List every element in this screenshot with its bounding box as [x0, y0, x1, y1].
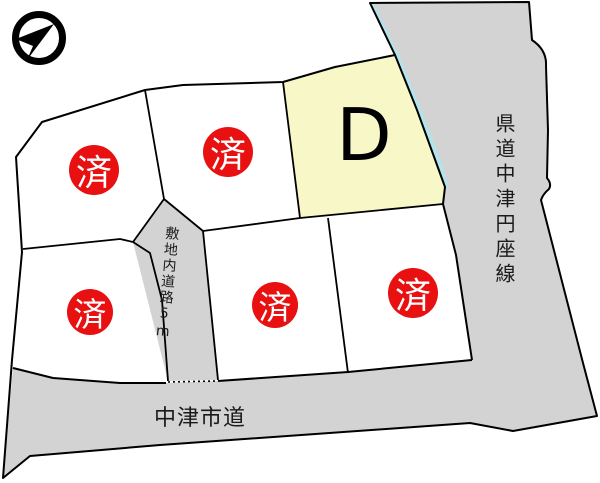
sold-badge-upper-left: 済 [69, 145, 119, 195]
sold-badge-upper-middle: 済 [203, 127, 253, 177]
city-road-label: 中津市道 [154, 400, 246, 432]
sold-badge-lower-left: 済 [67, 289, 113, 335]
subdivision-map: 県道中津円座線 中津市道 敷地内道路5m D 済 済 済 済 済 [0, 0, 600, 483]
north-arrow-icon [8, 8, 70, 70]
sold-badge-lower-middle: 済 [252, 282, 298, 328]
sold-badge-lower-right: 済 [388, 268, 438, 318]
prefectural-road-label: 県道中津円座線 [490, 113, 519, 288]
plot-d-label: D [324, 99, 404, 171]
